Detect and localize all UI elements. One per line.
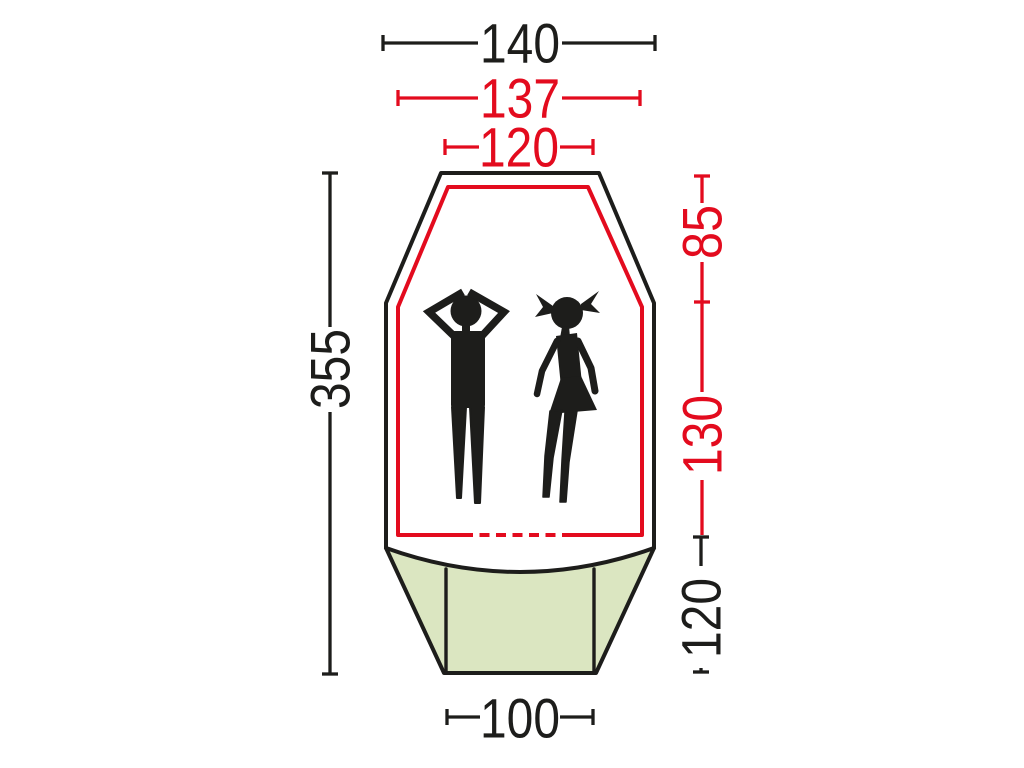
girl-right-leg <box>560 411 577 502</box>
girl-right-pigtail <box>581 291 600 313</box>
girl-lying-pictogram <box>535 291 600 502</box>
man-left-leg <box>452 407 466 498</box>
girl-left-arm <box>537 341 557 394</box>
man-torso <box>451 331 485 408</box>
dim-label-100: 100 <box>480 687 560 750</box>
dimension-top-inner-width: 120 <box>445 116 593 179</box>
vestibule-floor <box>386 548 654 673</box>
dimension-top-outer-width: 140 <box>383 12 655 75</box>
tent-floorplan-svg: 140 355 120 100 <box>0 0 1024 768</box>
dim-label-355: 355 <box>299 329 362 409</box>
inner-tent-outline <box>398 187 642 535</box>
inner-outline-group <box>398 187 642 535</box>
girl-left-leg <box>543 410 562 497</box>
girl-skirt <box>549 376 597 414</box>
vestibule-group <box>386 548 654 673</box>
dim-label-120-top: 120 <box>479 116 559 179</box>
dim-label-120-right: 120 <box>670 578 733 658</box>
dimension-right-inner-upper: 85 <box>671 176 734 302</box>
man-right-leg <box>470 407 484 503</box>
dim-label-85: 85 <box>671 205 734 259</box>
dim-label-130: 130 <box>671 395 734 475</box>
girl-head <box>551 297 583 329</box>
girl-left-pigtail <box>535 294 553 317</box>
dimension-left-total-length: 355 <box>299 173 362 674</box>
tent-dimension-diagram: 140 355 120 100 <box>0 0 1024 768</box>
dimension-right-vestibule-length: 120 <box>670 537 733 672</box>
dimension-right-inner-lower: 130 <box>671 302 734 535</box>
dim-label-140: 140 <box>480 12 560 75</box>
man-lying-pictogram <box>429 292 504 503</box>
dimension-bottom-vestibule-width: 100 <box>447 687 593 750</box>
